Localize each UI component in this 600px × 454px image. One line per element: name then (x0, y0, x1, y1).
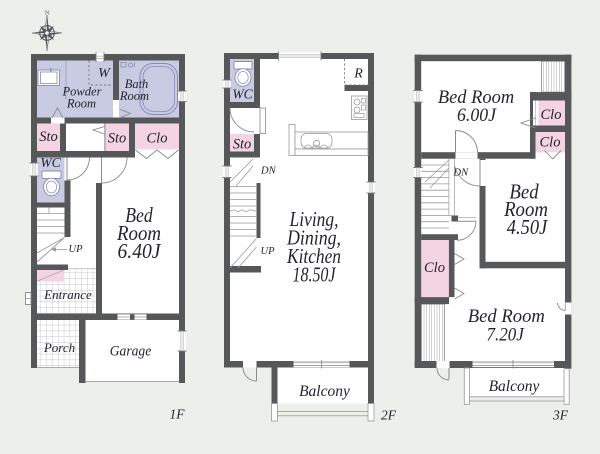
svg-text:6.00J: 6.00J (457, 105, 497, 126)
svg-text:Porch: Porch (43, 340, 75, 355)
svg-text:DN: DN (453, 168, 470, 179)
svg-text:2F: 2F (381, 408, 397, 423)
svg-text:Sto: Sto (108, 131, 127, 147)
svg-text:Room: Room (119, 89, 149, 103)
svg-text:UP: UP (261, 246, 276, 257)
svg-text:Sto: Sto (39, 129, 58, 145)
svg-text:6.40J: 6.40J (118, 239, 163, 263)
svg-text:Room: Room (66, 97, 96, 111)
svg-text:Entrance: Entrance (43, 287, 92, 302)
svg-text:WC: WC (40, 155, 61, 170)
svg-text:Clo: Clo (541, 107, 562, 123)
svg-text:4.50J: 4.50J (507, 215, 549, 239)
svg-text:UP: UP (69, 244, 84, 255)
svg-text:Sto: Sto (233, 137, 252, 153)
svg-text:Balcony: Balcony (299, 383, 350, 400)
svg-text:Clo: Clo (540, 135, 561, 151)
svg-text:Clo: Clo (424, 260, 445, 276)
svg-text:3F: 3F (552, 408, 569, 423)
svg-text:Clo: Clo (147, 131, 168, 147)
svg-text:Garage: Garage (110, 344, 152, 360)
svg-text:DN: DN (260, 166, 277, 177)
svg-text:18.50J: 18.50J (293, 263, 337, 287)
svg-text:N: N (45, 10, 50, 17)
svg-text:R: R (353, 67, 363, 82)
svg-text:1F: 1F (170, 407, 186, 422)
svg-text:Balcony: Balcony (489, 378, 540, 395)
svg-text:WC: WC (232, 87, 253, 102)
svg-text:7.20J: 7.20J (487, 325, 526, 346)
svg-text:W: W (98, 66, 111, 81)
